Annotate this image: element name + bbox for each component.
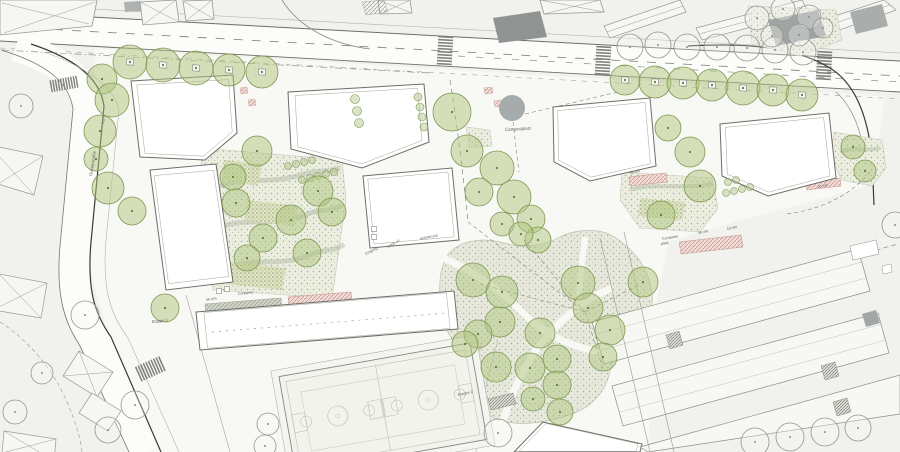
- tree-trunk: [746, 47, 748, 49]
- tree-trunk: [530, 218, 532, 220]
- tree-trunk: [771, 35, 773, 37]
- tree-trunk: [667, 127, 669, 129]
- park-tree: [456, 263, 490, 297]
- tree: [84, 147, 108, 171]
- tree: [854, 160, 876, 182]
- park-tree: [543, 345, 571, 373]
- bench: [484, 87, 493, 94]
- crosswalk-stripe: [437, 61, 452, 62]
- tree-trunk: [246, 257, 248, 259]
- tree-trunk: [232, 176, 234, 178]
- tree-trunk: [162, 64, 164, 66]
- tree-trunk: [101, 78, 103, 80]
- crosswalk-stripe: [437, 52, 452, 53]
- outlined-tree: [3, 400, 27, 424]
- tree-trunk: [754, 441, 756, 443]
- tree-trunk: [111, 99, 113, 101]
- tree-trunk: [808, 16, 810, 18]
- shrub: [731, 188, 738, 195]
- tree-trunk: [520, 233, 522, 235]
- park-tree: [589, 343, 617, 371]
- plaza-circle: [499, 95, 525, 121]
- tree-trunk: [529, 367, 531, 369]
- tree: [647, 201, 675, 229]
- tree-trunk: [84, 314, 86, 316]
- tree-trunk: [609, 329, 611, 331]
- shrub: [418, 113, 426, 121]
- tree-trunk: [686, 46, 688, 48]
- tree-trunk: [789, 436, 791, 438]
- outlined-tree: [813, 18, 833, 38]
- street-tree: [179, 51, 213, 85]
- crosswalk-stripe: [595, 71, 610, 72]
- crosswalk-stripe: [816, 76, 831, 77]
- shrub: [323, 171, 330, 178]
- tree-trunk: [195, 67, 197, 69]
- crosswalk-stripe: [817, 61, 832, 62]
- tree: [242, 136, 272, 166]
- shrub: [301, 159, 308, 166]
- crosswalk-stripe: [438, 43, 453, 44]
- street-tree: [639, 66, 671, 98]
- tree-trunk: [264, 445, 266, 447]
- crosswalk-stripe: [437, 58, 452, 59]
- tree-trunk: [497, 432, 499, 434]
- crosswalk-stripe: [816, 79, 831, 80]
- street-tree: [726, 71, 760, 105]
- tree-trunk: [267, 423, 269, 425]
- small-structure: [124, 1, 141, 12]
- bench: [240, 87, 248, 94]
- tree-trunk: [501, 223, 503, 225]
- park-tree: [628, 267, 658, 297]
- tree: [276, 205, 306, 235]
- park-tree: [452, 331, 478, 357]
- tree: [318, 198, 346, 226]
- tree: [95, 83, 129, 117]
- crosswalk-stripe: [596, 56, 611, 57]
- shrub: [416, 103, 424, 111]
- tree: [234, 245, 260, 271]
- stair-marker: [225, 287, 230, 292]
- stair-marker: [217, 289, 222, 294]
- outlined-tree: [845, 415, 871, 441]
- tree-trunk: [331, 211, 333, 213]
- tree-trunk: [261, 71, 263, 73]
- street-tree: [696, 69, 728, 101]
- house: [2, 431, 56, 452]
- park-tree: [547, 399, 573, 425]
- tree-trunk: [478, 191, 480, 193]
- crosswalk-stripe: [816, 70, 831, 71]
- shrub: [414, 93, 422, 101]
- outlined-tree: [788, 24, 810, 46]
- crosswalk-stripe: [437, 55, 452, 56]
- shrub: [723, 190, 730, 197]
- outlined-tree: [484, 419, 512, 447]
- outlined-tree: [31, 362, 53, 384]
- tree: [293, 239, 321, 267]
- outlined-tree: [882, 212, 900, 238]
- tree-trunk: [699, 185, 701, 187]
- building-e: [553, 98, 656, 181]
- tree-trunk: [822, 27, 824, 29]
- tree-trunk: [129, 61, 131, 63]
- tree-trunk: [539, 332, 541, 334]
- outlined-tree: [704, 34, 730, 60]
- shrub: [353, 107, 362, 116]
- plan-layers: [0, 0, 900, 452]
- tree-trunk: [513, 196, 515, 198]
- outlined-tree: [674, 34, 700, 60]
- tree-trunk: [711, 84, 713, 86]
- tree-trunk: [587, 307, 589, 309]
- tree-trunk: [756, 17, 758, 19]
- tree-trunk: [657, 44, 659, 46]
- tree-trunk: [464, 343, 466, 345]
- tree: [684, 170, 716, 202]
- tree-trunk: [798, 34, 800, 36]
- park-tree: [515, 353, 545, 383]
- tree-trunk: [577, 282, 579, 284]
- tree-trunk: [537, 239, 539, 241]
- tree: [118, 197, 146, 225]
- tree-trunk: [107, 429, 109, 431]
- tree-trunk: [689, 151, 691, 153]
- outlined-tree: [95, 417, 121, 443]
- tree-trunk: [782, 8, 784, 10]
- crosswalk-stripe: [817, 55, 832, 56]
- existing-building: [183, 0, 214, 21]
- street-tree: [667, 67, 699, 99]
- shrub: [420, 123, 428, 131]
- crosswalk-stripe: [596, 50, 611, 51]
- outlined-tree: [741, 428, 769, 452]
- tree-canopy: [741, 428, 769, 452]
- outlined-tree: [617, 34, 643, 60]
- gray-building: [493, 11, 547, 43]
- street-tree: [213, 54, 245, 86]
- tree: [841, 135, 865, 159]
- tree: [465, 178, 493, 206]
- tree-trunk: [654, 81, 656, 83]
- shrub: [299, 177, 306, 184]
- shrub: [293, 161, 300, 168]
- crosswalk-stripe: [595, 65, 610, 66]
- bench: [248, 99, 256, 106]
- park-tree: [595, 315, 625, 345]
- tree: [222, 189, 250, 217]
- tree-trunk: [477, 333, 479, 335]
- stair-marker: [372, 227, 377, 232]
- tree-trunk: [824, 431, 826, 433]
- tree-trunk: [801, 94, 803, 96]
- tree: [655, 115, 681, 141]
- street-tree: [757, 74, 789, 106]
- park-tree: [525, 318, 555, 348]
- park-tree: [521, 387, 545, 411]
- tree-trunk: [496, 167, 498, 169]
- tree-trunk: [495, 366, 497, 368]
- tree-trunk: [742, 87, 744, 89]
- tree-trunk: [262, 237, 264, 239]
- gray-slab: [850, 4, 888, 34]
- tree-trunk: [228, 69, 230, 71]
- tree-trunk: [716, 46, 718, 48]
- crosswalk-stripe: [816, 73, 831, 74]
- tree-trunk: [164, 307, 166, 309]
- crosswalk-stripe: [437, 64, 452, 65]
- stair-marker: [372, 235, 377, 240]
- crosswalk-stripe: [595, 74, 610, 75]
- tree-trunk: [472, 279, 474, 281]
- tree-trunk: [802, 51, 804, 53]
- crosswalk-stripe: [596, 47, 611, 48]
- tree-trunk: [682, 82, 684, 84]
- tree-trunk: [317, 190, 319, 192]
- outlined-tree: [776, 423, 804, 451]
- tree-trunk: [41, 372, 43, 374]
- outlined-tree: [257, 413, 279, 435]
- tree-trunk: [660, 214, 662, 216]
- tree-trunk: [14, 411, 16, 413]
- tree-trunk: [131, 210, 133, 212]
- shrub: [355, 119, 364, 128]
- park-tree: [486, 276, 518, 308]
- tree-trunk: [235, 202, 237, 204]
- shrub: [351, 95, 360, 104]
- shrub: [285, 163, 292, 170]
- outlined-tree: [9, 94, 33, 118]
- tree-trunk: [602, 356, 604, 358]
- street-tree: [246, 56, 278, 88]
- tree-trunk: [556, 358, 558, 360]
- plan-label-2: platz: [661, 241, 670, 246]
- crosswalk-stripe: [595, 68, 610, 69]
- tree-trunk: [642, 281, 644, 283]
- crosswalk-stripe: [438, 49, 453, 50]
- tree: [675, 137, 705, 167]
- tree-trunk: [306, 252, 308, 254]
- outlined-tree: [811, 418, 839, 446]
- outlined-tree: [121, 391, 149, 419]
- outlined-tree: [71, 301, 99, 329]
- tree-trunk: [532, 398, 534, 400]
- tree-trunk: [20, 105, 22, 107]
- site-plan-svg: CampusplatzContainerplatz36 VPl19 VPl36 …: [0, 0, 900, 452]
- outlined-tree: [645, 32, 671, 58]
- park-tree: [543, 371, 571, 399]
- crosswalk-stripe: [595, 62, 610, 63]
- tree-trunk: [864, 170, 866, 172]
- bike-parking: [679, 235, 743, 254]
- outlined-tree: [734, 35, 760, 61]
- tree-trunk: [624, 79, 626, 81]
- tree-trunk: [774, 49, 776, 51]
- crosswalk-stripe: [817, 58, 832, 59]
- street-tree: [146, 48, 180, 82]
- shrub: [739, 186, 746, 193]
- outlined-tree: [771, 0, 795, 21]
- shrub: [747, 184, 754, 191]
- small-structure: [850, 240, 879, 260]
- tree-trunk: [134, 404, 136, 406]
- crosswalk-stripe: [438, 46, 453, 47]
- park-tree: [573, 293, 603, 323]
- crosswalk-stripe: [438, 40, 453, 41]
- tree: [220, 164, 246, 190]
- roof-ridge: [607, 6, 683, 32]
- tree-trunk: [256, 150, 258, 152]
- street-tree: [113, 45, 147, 79]
- plan-label-4: 19 VPl: [727, 225, 738, 231]
- shrub: [733, 177, 740, 184]
- tree-canopy: [882, 212, 900, 238]
- street-tree: [610, 65, 640, 95]
- building-d: [363, 168, 459, 248]
- tree-trunk: [466, 150, 468, 152]
- tree-trunk: [629, 46, 631, 48]
- tree: [84, 115, 116, 147]
- crosswalk-stripe: [438, 37, 453, 38]
- house: [0, 145, 43, 195]
- tree-trunk: [559, 411, 561, 413]
- tree-trunk: [772, 89, 774, 91]
- shrub: [725, 179, 732, 186]
- shrub: [331, 169, 338, 176]
- tree-trunk: [857, 427, 859, 429]
- small-structure: [882, 264, 892, 274]
- tree: [433, 93, 471, 131]
- tree: [92, 172, 124, 204]
- crosswalk-stripe: [596, 53, 611, 54]
- tree-trunk: [99, 130, 101, 132]
- crosswalk-stripe: [53, 80, 55, 92]
- tree-trunk: [501, 291, 503, 293]
- tree-trunk: [451, 111, 453, 113]
- tree-trunk: [556, 384, 558, 386]
- tree-trunk: [852, 146, 854, 148]
- street-tree: [786, 79, 818, 111]
- house: [0, 274, 47, 318]
- crosswalk-stripe: [596, 59, 611, 60]
- crosswalk-stripe: [817, 52, 832, 53]
- crosswalk-stripe: [50, 80, 52, 92]
- tree-canopy: [771, 0, 795, 21]
- site-plan-image: CampusplatzContainerplatz36 VPl19 VPl36 …: [0, 0, 900, 452]
- park-tree: [481, 352, 511, 382]
- tree-trunk: [290, 219, 292, 221]
- shrub: [309, 157, 316, 164]
- outlined-tree: [745, 6, 769, 30]
- tree: [451, 135, 483, 167]
- tree-trunk: [499, 321, 501, 323]
- park-tree: [509, 222, 533, 246]
- tree-trunk: [107, 187, 109, 189]
- tree-trunk: [894, 224, 896, 226]
- outlined-tree: [761, 25, 783, 47]
- plan-label-3: 36 VPl: [698, 229, 709, 235]
